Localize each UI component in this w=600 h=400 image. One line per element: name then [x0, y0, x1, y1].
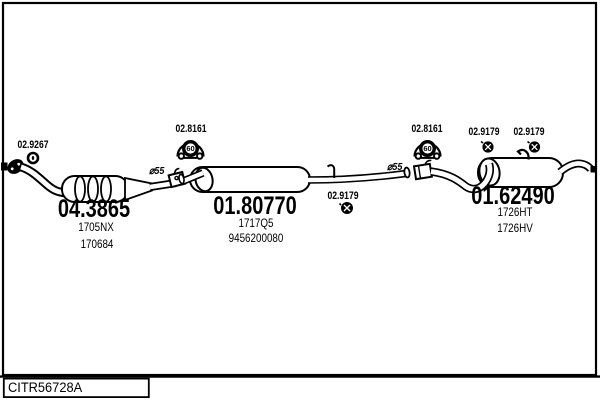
catalyst-ref-2: 170684	[48, 238, 146, 250]
right-connection-stub	[591, 166, 598, 173]
middle-muffler	[178, 166, 310, 193]
rear-clamp-sleeve	[404, 160, 434, 179]
clamp-size-label-rear: 60	[423, 144, 431, 153]
pipe-diameter-rear: ⌀55	[387, 162, 402, 173]
clamp-size-label-front: 60	[186, 144, 194, 153]
pipe-diameter-front: ⌀55	[149, 166, 164, 177]
clamp-front-part-code: 02.8161	[160, 124, 222, 135]
mount-rear-2-part-code: 02.9179	[498, 127, 560, 138]
rear-muffler-ref-1: 1726HT	[449, 206, 580, 218]
gasket-icon	[28, 153, 38, 163]
middle-muffler-ref-2: 9456200080	[190, 232, 321, 244]
left-connection-stub	[1, 163, 8, 171]
tail-pipe	[560, 164, 597, 173]
exhaust-system-diagram: 60 60 02.9267 02.8161 ⌀55 04.3865 1705NX…	[0, 0, 600, 400]
clamp-icon-rear: 60	[415, 142, 441, 159]
gasket-part-code: 02.9267	[10, 140, 57, 151]
intermediate-pipe	[308, 174, 406, 181]
clamp-icon-front: 60	[178, 142, 204, 159]
middle-muffler-ref-1: 1717Q5	[190, 217, 321, 229]
mount-middle-part-code: 02.9179	[312, 191, 374, 202]
front-downpipe	[21, 167, 66, 193]
rear-muffler-ref-2: 1726HV	[449, 222, 580, 234]
clamp-rear-part-code: 02.8161	[396, 124, 458, 135]
catalyst-part-number: 04.3865	[46, 197, 142, 222]
rubber-mount-icon-rear-2	[528, 141, 541, 152]
catalyst-ref-1: 1705NX	[47, 221, 145, 233]
rubber-mount-icon-rear-1	[481, 141, 494, 152]
rubber-mount-icon-middle	[340, 202, 354, 214]
drawing-code: CITR56728A	[8, 381, 82, 395]
